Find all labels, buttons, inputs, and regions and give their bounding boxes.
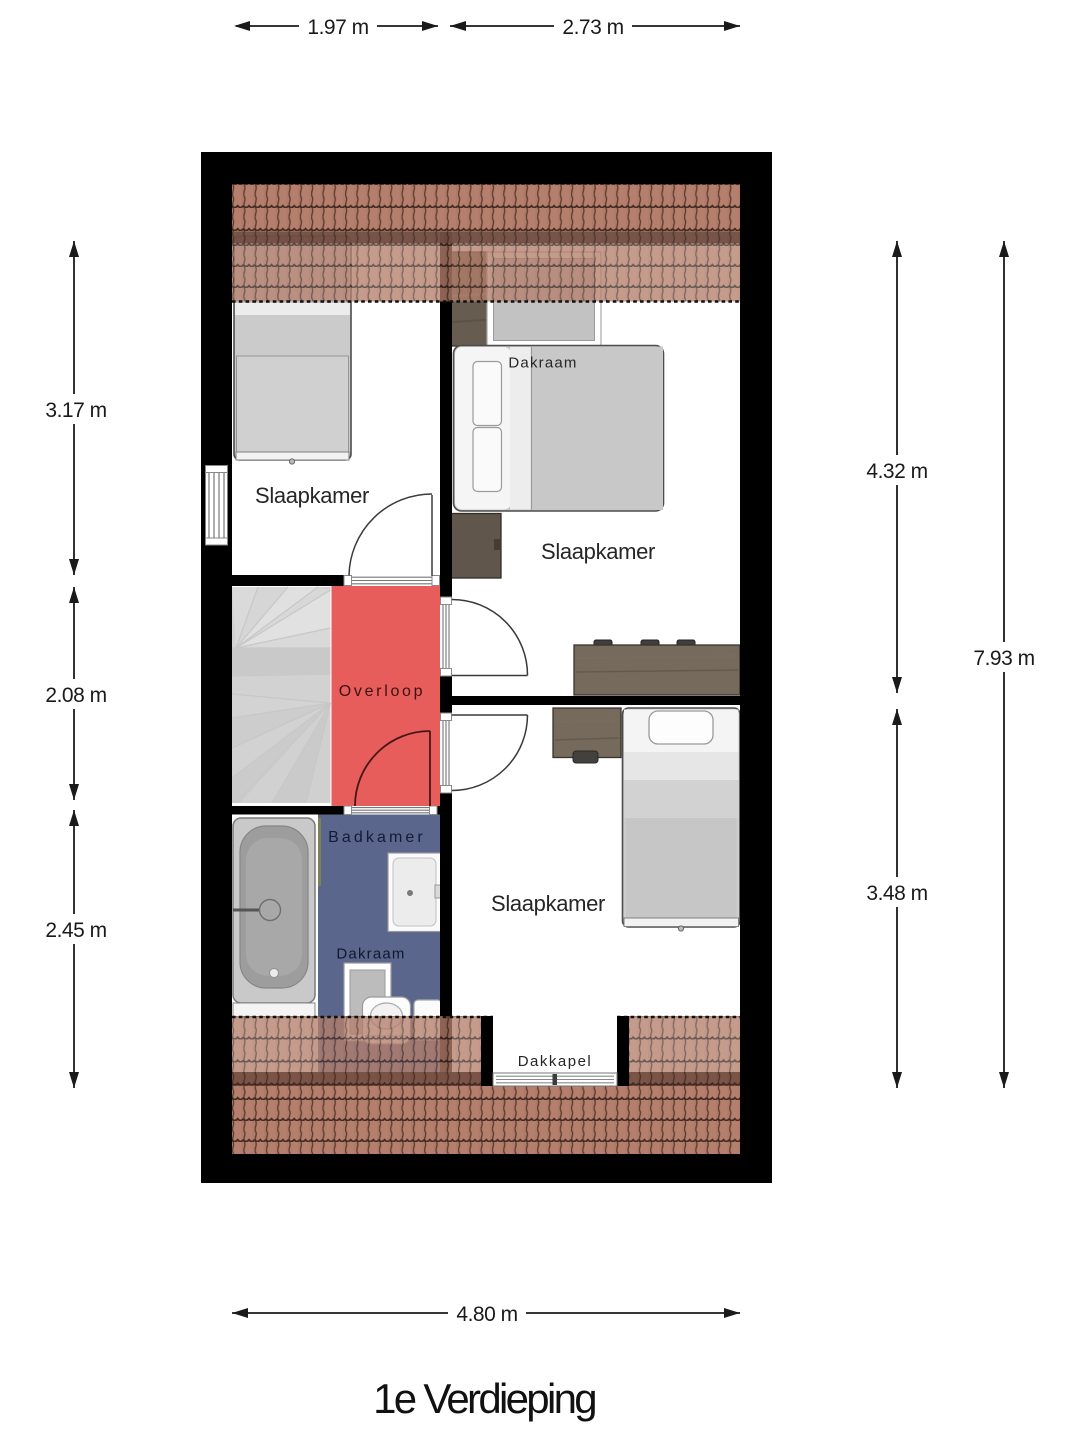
svg-text:3.48 m: 3.48 m xyxy=(866,882,927,905)
svg-text:4.32 m: 4.32 m xyxy=(866,460,927,483)
svg-text:2.45 m: 2.45 m xyxy=(45,919,106,942)
svg-text:Dakraam: Dakraam xyxy=(336,946,405,963)
svg-text:2.08 m: 2.08 m xyxy=(45,684,106,707)
svg-text:1.97 m: 1.97 m xyxy=(307,16,368,39)
svg-text:3.17 m: 3.17 m xyxy=(45,399,106,422)
svg-text:1e Verdieping: 1e Verdieping xyxy=(373,1375,595,1422)
svg-text:7.93 m: 7.93 m xyxy=(973,647,1034,670)
svg-text:Slaapkamer: Slaapkamer xyxy=(255,483,369,508)
svg-text:Slaapkamer: Slaapkamer xyxy=(541,539,655,564)
svg-text:4.80 m: 4.80 m xyxy=(456,1303,517,1326)
svg-text:Badkamer: Badkamer xyxy=(328,829,426,846)
svg-text:Dakkapel: Dakkapel xyxy=(518,1053,593,1070)
svg-text:Overloop: Overloop xyxy=(339,683,426,700)
svg-text:Slaapkamer: Slaapkamer xyxy=(491,891,605,916)
svg-text:Dakraam: Dakraam xyxy=(508,355,577,372)
svg-text:2.73 m: 2.73 m xyxy=(562,16,623,39)
